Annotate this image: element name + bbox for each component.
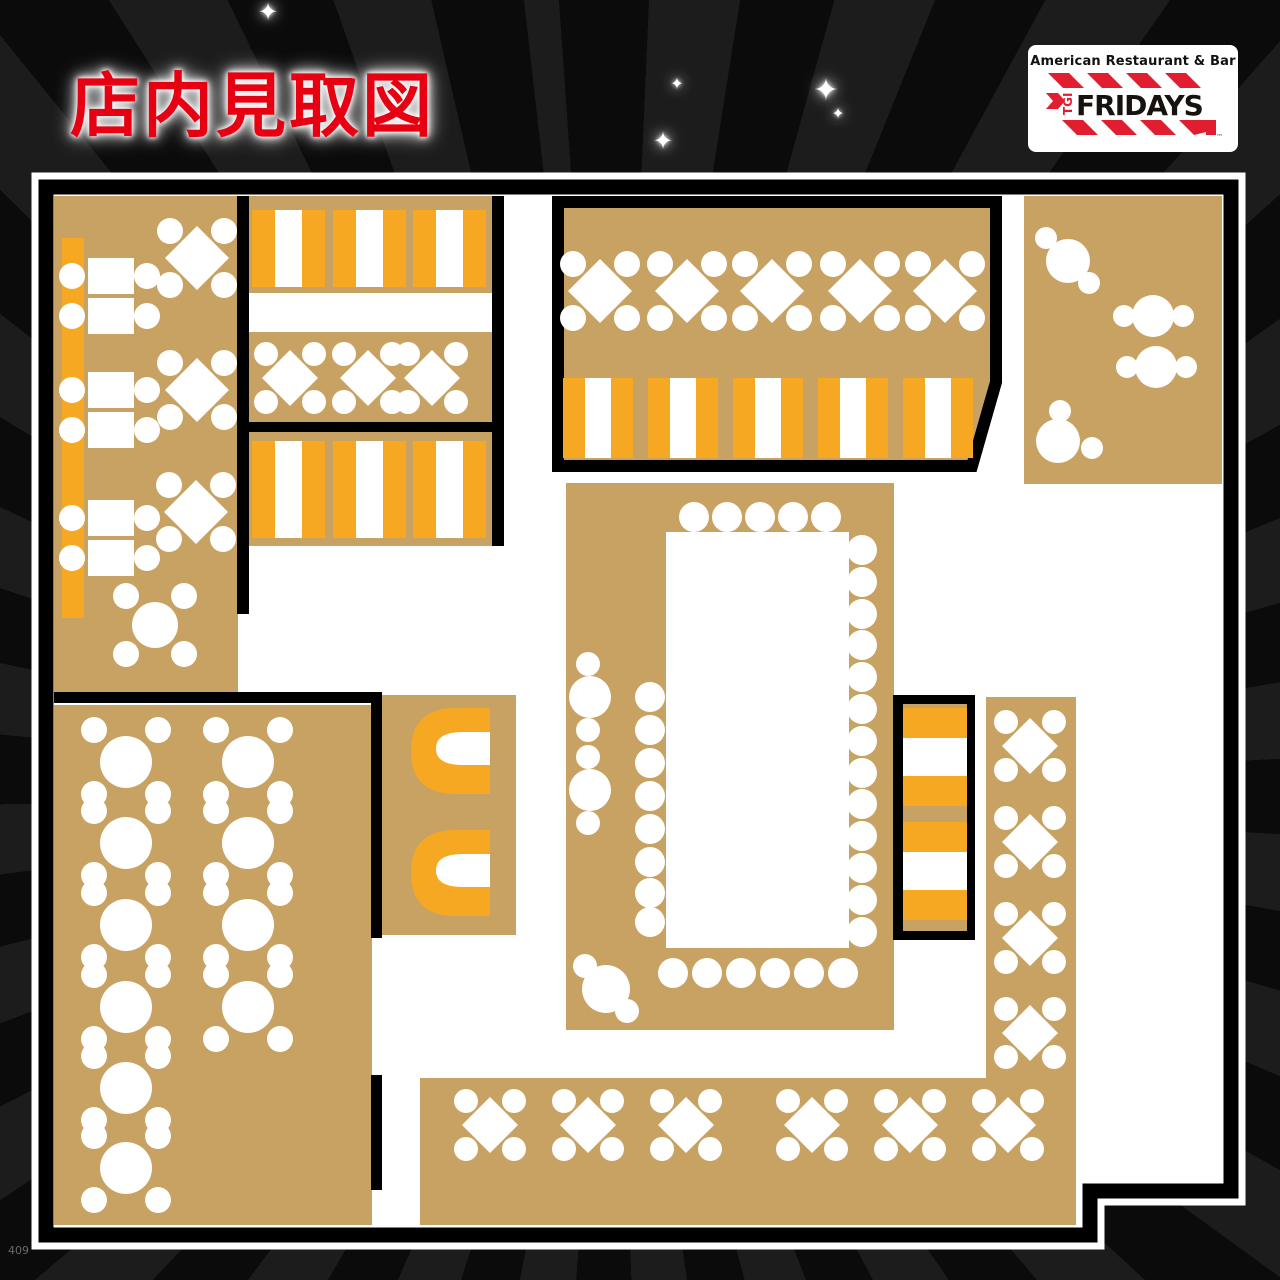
chair: [647, 305, 673, 331]
chair: [874, 1137, 898, 1161]
chair: [81, 717, 107, 743]
page-title: 店内見取図: [70, 50, 435, 151]
logo-stripes-top: [1048, 73, 1201, 88]
round-table: [1135, 346, 1177, 388]
chair: [396, 342, 420, 366]
booth-stripe-seat: [903, 738, 967, 776]
logo-stripe: [1140, 120, 1176, 135]
chair: [171, 583, 197, 609]
chair: [701, 305, 727, 331]
chair: [332, 390, 356, 414]
booth-stripe-seat: [436, 441, 463, 538]
chair: [576, 745, 600, 769]
chair: [1113, 305, 1135, 327]
chair: [824, 1137, 848, 1161]
tgi-fridays-mark: TGI FRIDAYS ™: [1040, 69, 1226, 143]
chair: [134, 263, 160, 289]
logo-stripes-bottom: [1062, 120, 1216, 135]
chair: [454, 1089, 478, 1113]
round-table: [100, 1142, 152, 1194]
stool: [635, 748, 665, 778]
rect-table: [88, 500, 134, 536]
logo-stripe: [1101, 120, 1137, 135]
chair: [156, 472, 182, 498]
wall: [371, 692, 382, 938]
booth-stripe-seat: [696, 378, 718, 458]
chair: [776, 1089, 800, 1113]
booth-stripe-seat: [463, 210, 486, 287]
stool: [847, 789, 877, 819]
round-table: [222, 817, 274, 869]
chair: [211, 350, 237, 376]
chair: [972, 1137, 996, 1161]
chair: [332, 342, 356, 366]
stool: [778, 502, 808, 532]
chair: [1042, 710, 1066, 734]
booth-stripe-seat: [733, 378, 755, 458]
stool: [847, 567, 877, 597]
wall: [492, 196, 504, 546]
chair: [972, 1089, 996, 1113]
booth-stripe-seat: [585, 378, 611, 458]
chair: [994, 806, 1018, 830]
chair: [267, 1026, 293, 1052]
booth-stripe-seat: [903, 890, 967, 920]
logo-arrow: [1179, 120, 1216, 135]
chair: [701, 251, 727, 277]
round-table: [100, 899, 152, 951]
booth-stripe-seat: [252, 210, 275, 287]
chair: [994, 854, 1018, 878]
chair: [171, 641, 197, 667]
booth-stripe-seat: [925, 378, 951, 458]
chair: [786, 305, 812, 331]
chair: [650, 1089, 674, 1113]
booth-stripe-seat: [463, 441, 486, 538]
chair: [1172, 305, 1194, 327]
chair: [145, 1123, 171, 1149]
booth-stripe-seat: [436, 210, 463, 287]
round-table: [100, 736, 152, 788]
booth-stripe-seat: [866, 378, 888, 458]
stool: [847, 662, 877, 692]
stool: [847, 853, 877, 883]
stool: [828, 958, 858, 988]
chair: [1042, 950, 1066, 974]
chair: [302, 390, 326, 414]
booth-stripe-seat: [818, 378, 840, 458]
chair: [576, 811, 600, 835]
chair: [600, 1137, 624, 1161]
chair: [1042, 854, 1066, 878]
booth-stripe-seat: [383, 210, 406, 287]
chair: [113, 641, 139, 667]
chair: [824, 1089, 848, 1113]
round-table: [1036, 419, 1080, 463]
round-table: [222, 981, 274, 1033]
logo-trademark: ™: [1216, 133, 1223, 141]
stool: [635, 847, 665, 877]
wall: [54, 692, 382, 703]
chair: [157, 218, 183, 244]
booth-stripe-seat: [356, 441, 383, 538]
booth-stripe-seat: [356, 210, 383, 287]
chair: [267, 798, 293, 824]
chair: [267, 962, 293, 988]
stool: [712, 502, 742, 532]
round-table: [222, 736, 274, 788]
stool: [679, 502, 709, 532]
chair: [874, 251, 900, 277]
chair: [134, 417, 160, 443]
booth-stripe-seat: [302, 210, 325, 287]
chair: [145, 1043, 171, 1069]
stool: [745, 502, 775, 532]
booth-stripe-seat: [903, 708, 967, 738]
chair: [1116, 356, 1138, 378]
booth-stripe-seat: [648, 378, 670, 458]
u-booth-table: [436, 732, 490, 765]
chair: [302, 342, 326, 366]
wall: [237, 196, 249, 614]
chair: [994, 950, 1018, 974]
stool: [811, 502, 841, 532]
chair: [959, 305, 985, 331]
page-number: 409: [8, 1244, 29, 1257]
chair: [1049, 400, 1071, 422]
chair: [1175, 356, 1197, 378]
chair: [203, 717, 229, 743]
chair: [145, 798, 171, 824]
chair: [1020, 1089, 1044, 1113]
stool: [847, 885, 877, 915]
chair: [254, 390, 278, 414]
chair: [59, 303, 85, 329]
stool: [658, 958, 688, 988]
booth-stripe-seat: [413, 441, 436, 538]
u-booth-table: [436, 854, 490, 887]
chair: [650, 1137, 674, 1161]
logo-stripe: [1087, 73, 1123, 88]
chair: [600, 1089, 624, 1113]
stool: [760, 958, 790, 988]
booth-stripe-seat: [840, 378, 866, 458]
chair: [211, 218, 237, 244]
chair: [905, 305, 931, 331]
stool: [692, 958, 722, 988]
chair: [820, 305, 846, 331]
booth-stripe-seat: [302, 441, 325, 538]
booth-stripe-seat: [333, 210, 356, 287]
chair: [576, 652, 600, 676]
chair: [267, 880, 293, 906]
chair: [922, 1089, 946, 1113]
chair: [81, 880, 107, 906]
stool: [726, 958, 756, 988]
rect-table: [88, 258, 134, 294]
logo-tagline: American Restaurant & Bar: [1030, 54, 1236, 69]
chair: [614, 305, 640, 331]
chair: [874, 1089, 898, 1113]
stool: [635, 682, 665, 712]
chair: [59, 505, 85, 531]
booth-stripe-seat: [670, 378, 696, 458]
chair: [994, 997, 1018, 1021]
booth-stripe-seat: [275, 441, 302, 538]
chair: [59, 263, 85, 289]
chair: [81, 962, 107, 988]
round-table: [1132, 295, 1174, 337]
chair: [502, 1137, 526, 1161]
chair: [560, 251, 586, 277]
chair: [113, 583, 139, 609]
booth-stripe-seat: [903, 776, 967, 806]
chair: [157, 350, 183, 376]
chair: [59, 377, 85, 403]
round-table: [132, 602, 178, 648]
chair: [81, 798, 107, 824]
stool: [847, 726, 877, 756]
chair: [134, 545, 160, 571]
chair: [203, 880, 229, 906]
chair: [786, 251, 812, 277]
chair: [994, 902, 1018, 926]
wall: [371, 1075, 382, 1190]
stool: [847, 917, 877, 947]
chair: [647, 251, 673, 277]
chair: [994, 1045, 1018, 1069]
round-table: [100, 1062, 152, 1114]
chair: [994, 710, 1018, 734]
stool: [847, 694, 877, 724]
chair: [698, 1089, 722, 1113]
rect-table: [88, 540, 134, 576]
chair: [254, 342, 278, 366]
rect-table: [88, 298, 134, 334]
chair: [1081, 437, 1103, 459]
chair: [1020, 1137, 1044, 1161]
logo-fridays-text: FRIDAYS: [1076, 89, 1203, 122]
chair: [145, 1187, 171, 1213]
stool: [847, 630, 877, 660]
stool: [847, 535, 877, 565]
booth-stripe-seat: [563, 378, 585, 458]
booth-stripe-seat: [903, 852, 967, 890]
chair: [614, 251, 640, 277]
chair: [211, 404, 237, 430]
chair: [698, 1137, 722, 1161]
poster-background: ✦ ✦ ✦ ✦ ✦ ✦ ✦: [0, 0, 1280, 1280]
booth-stripe-seat: [903, 378, 925, 458]
chair: [203, 962, 229, 988]
booth-stripe-seat: [951, 378, 973, 458]
booth-stripe-seat: [252, 441, 275, 538]
chair: [576, 718, 600, 742]
chair: [1042, 1045, 1066, 1069]
logo-stripe: [1048, 73, 1084, 88]
round-table: [100, 817, 152, 869]
chair: [81, 1043, 107, 1069]
booth-stripe-seat: [781, 378, 803, 458]
chair: [134, 303, 160, 329]
stool: [635, 878, 665, 908]
chair: [145, 717, 171, 743]
rect-table: [88, 372, 134, 408]
stool: [847, 821, 877, 851]
chair: [959, 251, 985, 277]
stool: [794, 958, 824, 988]
bar-counter: [666, 532, 849, 948]
chair: [905, 251, 931, 277]
floor-plan: [0, 0, 1280, 1280]
chair: [145, 962, 171, 988]
stool: [847, 758, 877, 788]
chair: [210, 526, 236, 552]
tgi-fridays-logo: American Restaurant & Bar TGI FRIDAYS ™: [1028, 45, 1238, 152]
logo-stripe: [1126, 73, 1162, 88]
round-table: [569, 676, 611, 718]
chair: [145, 880, 171, 906]
booth-stripe-seat: [413, 210, 436, 287]
logo-stripe: [1062, 120, 1098, 135]
chair: [922, 1137, 946, 1161]
chair: [81, 1123, 107, 1149]
rect-table: [88, 412, 134, 448]
stool: [635, 814, 665, 844]
logo-stripe: [1165, 73, 1201, 88]
chair: [776, 1137, 800, 1161]
chair: [396, 390, 420, 414]
stool: [635, 781, 665, 811]
stool: [635, 907, 665, 937]
chair: [994, 758, 1018, 782]
chair: [156, 526, 182, 552]
stool: [847, 599, 877, 629]
chair: [1042, 997, 1066, 1021]
stool: [635, 715, 665, 745]
chair: [732, 251, 758, 277]
chair: [211, 272, 237, 298]
round-table: [569, 769, 611, 811]
round-table: [100, 981, 152, 1033]
chair: [444, 390, 468, 414]
chair: [157, 404, 183, 430]
round-table: [222, 899, 274, 951]
chair: [444, 342, 468, 366]
chair: [203, 798, 229, 824]
chair: [81, 1187, 107, 1213]
chair: [820, 251, 846, 277]
chair: [874, 305, 900, 331]
chair: [454, 1137, 478, 1161]
booth-stripe-seat: [611, 378, 633, 458]
chair: [134, 505, 160, 531]
chair: [615, 999, 639, 1023]
chair: [1042, 902, 1066, 926]
chair: [134, 377, 160, 403]
chair: [552, 1137, 576, 1161]
wall: [248, 422, 504, 432]
booth-stripe-seat: [903, 822, 967, 852]
chair: [267, 717, 293, 743]
chair: [1078, 272, 1100, 294]
booth-stripe-seat: [755, 378, 781, 458]
chair: [59, 417, 85, 443]
chair: [59, 545, 85, 571]
chair: [203, 1026, 229, 1052]
booth-stripe-seat: [383, 441, 406, 538]
chair: [732, 305, 758, 331]
chair: [560, 305, 586, 331]
chair: [552, 1089, 576, 1113]
booth-stripe-seat: [333, 441, 356, 538]
chair: [502, 1089, 526, 1113]
logo-tgi-text: TGI: [1061, 93, 1075, 116]
chair: [157, 272, 183, 298]
chair: [210, 472, 236, 498]
chair: [1042, 806, 1066, 830]
chair: [1042, 758, 1066, 782]
booth-stripe-seat: [275, 210, 302, 287]
